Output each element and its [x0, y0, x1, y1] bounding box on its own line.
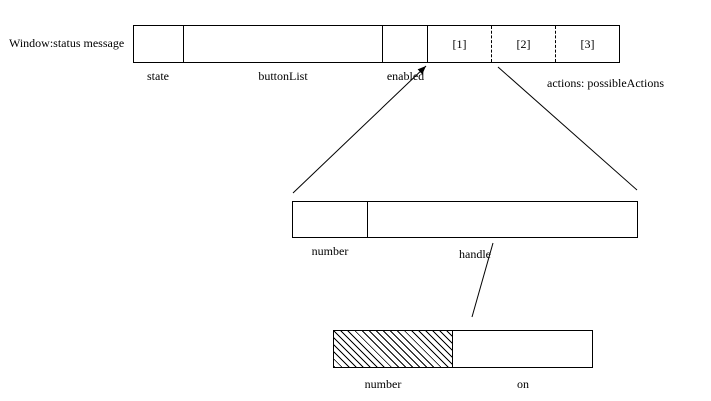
slot1-left-expansion-arrow [293, 66, 426, 193]
state-field-label: state [133, 70, 183, 82]
state-number-cell-hatched [334, 331, 453, 367]
button-handle-label: handle [368, 248, 582, 260]
button-object-box [292, 201, 638, 238]
action-slot-1: [1] [428, 26, 492, 62]
object-structure-diagram: Window:status message [1] [2] [3] state … [0, 0, 711, 401]
state-cell [134, 26, 184, 62]
buttonlist-field-label: buttonList [183, 70, 383, 82]
window-object-label: Window:status message [9, 37, 124, 49]
button-number-cell [293, 202, 368, 237]
button-handle-cell [368, 202, 637, 237]
button-number-label: number [292, 245, 368, 257]
action-slot-3: [3] [556, 26, 619, 62]
enabled-field-label: enabled [373, 70, 438, 82]
state-on-label: on [453, 378, 593, 390]
actions-field-label: actions: possibleActions [547, 77, 664, 89]
action-slot-2: [2] [492, 26, 556, 62]
window-object-box: [1] [2] [3] [133, 25, 620, 63]
state-object-box [333, 330, 593, 368]
buttonlist-cell [184, 26, 383, 62]
enabled-cell [383, 26, 428, 62]
state-on-cell [453, 331, 592, 367]
state-number-label: number [333, 378, 433, 390]
